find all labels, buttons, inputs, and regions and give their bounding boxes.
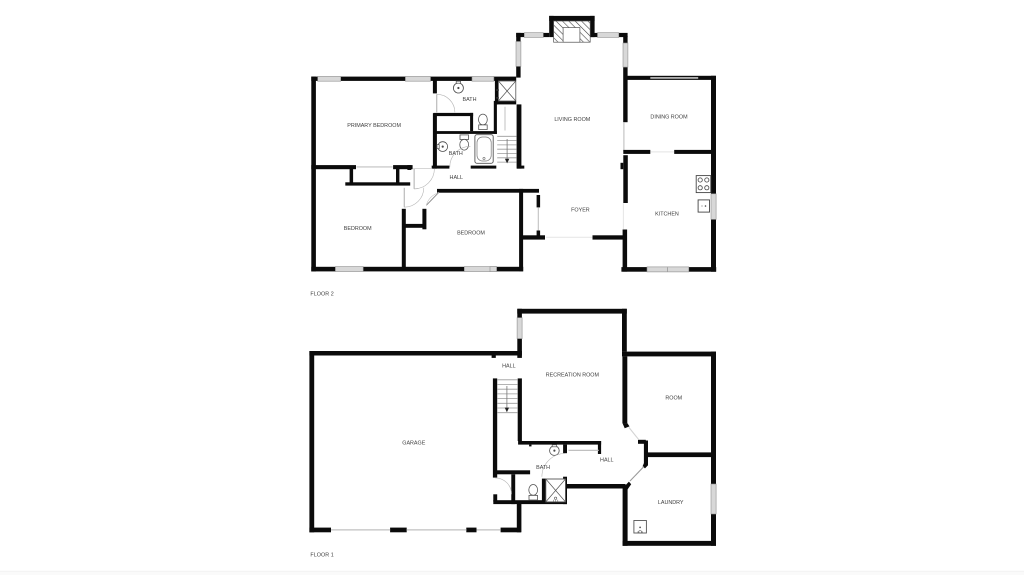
svg-text:BEDROOM: BEDROOM xyxy=(457,231,485,237)
svg-text:LIVING ROOM: LIVING ROOM xyxy=(554,117,590,123)
svg-text:BATH: BATH xyxy=(463,97,477,103)
svg-text:HALL: HALL xyxy=(600,457,614,463)
svg-text:FLOOR 2: FLOOR 2 xyxy=(310,292,333,298)
svg-text:ROOM: ROOM xyxy=(665,395,682,401)
svg-text:HALL: HALL xyxy=(450,175,464,181)
svg-text:RECREATION ROOM: RECREATION ROOM xyxy=(546,372,600,378)
svg-text:FOYER: FOYER xyxy=(571,208,590,214)
svg-text:FLOOR 1: FLOOR 1 xyxy=(310,552,333,558)
svg-text:BEDROOM: BEDROOM xyxy=(344,226,372,232)
svg-text:PRIMARY BEDROOM: PRIMARY BEDROOM xyxy=(347,123,401,129)
svg-text:GARAGE: GARAGE xyxy=(402,440,425,446)
svg-text:BATH: BATH xyxy=(536,465,550,471)
svg-text:HALL: HALL xyxy=(502,364,516,370)
svg-text:KITCHEN: KITCHEN xyxy=(655,212,679,218)
svg-text:DINING ROOM: DINING ROOM xyxy=(650,115,688,121)
svg-text:LAUNDRY: LAUNDRY xyxy=(658,500,684,506)
svg-text:BATH: BATH xyxy=(449,151,463,157)
